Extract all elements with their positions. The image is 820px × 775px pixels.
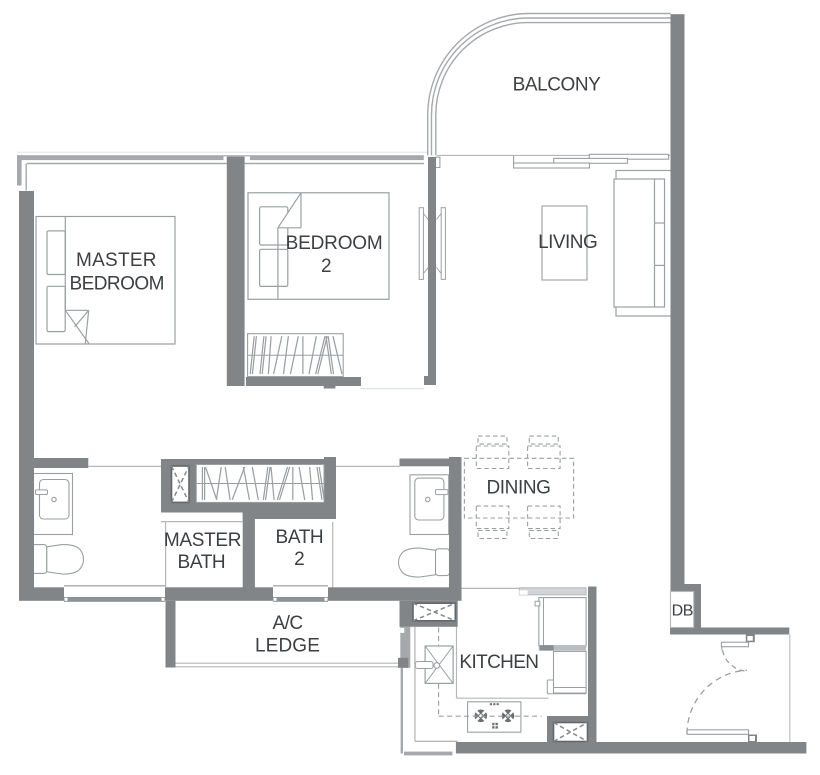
svg-text:DINING: DINING [487,477,551,498]
svg-text:LEDGE: LEDGE [255,636,320,657]
svg-text:BATH: BATH [276,527,324,548]
svg-text:MASTER: MASTER [164,530,241,551]
svg-text:BEDROOM: BEDROOM [69,274,163,295]
svg-text:BALCONY: BALCONY [513,74,601,95]
svg-text:BATH: BATH [178,552,226,573]
svg-text:2: 2 [321,256,332,277]
svg-text:A/C: A/C [273,613,303,634]
svg-text:BEDROOM: BEDROOM [286,233,383,254]
svg-text:2: 2 [294,549,305,570]
svg-text:KITCHEN: KITCHEN [459,652,538,673]
svg-text:MASTER: MASTER [76,250,157,271]
svg-text:LIVING: LIVING [538,232,597,253]
svg-text:DB: DB [672,602,693,619]
